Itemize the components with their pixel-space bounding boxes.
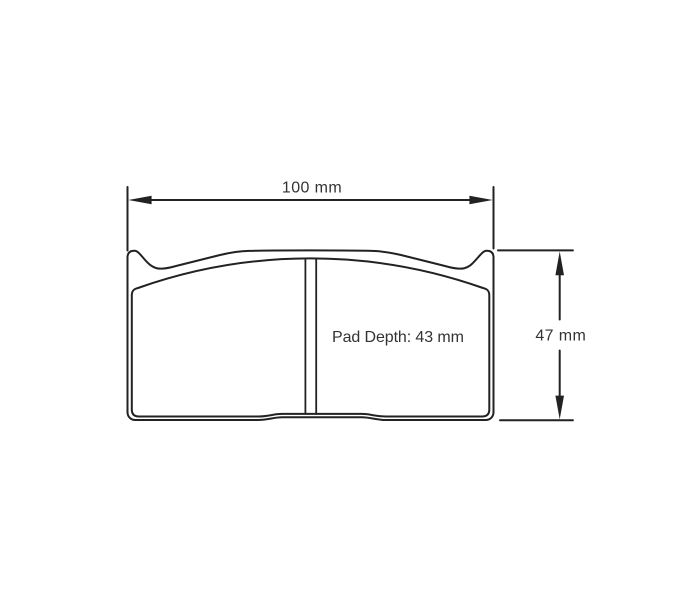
svg-text:Pad Depth: 43 mm: Pad Depth: 43 mm	[332, 329, 464, 346]
svg-text:47 mm: 47 mm	[535, 328, 586, 345]
svg-text:100 mm: 100 mm	[282, 180, 342, 197]
